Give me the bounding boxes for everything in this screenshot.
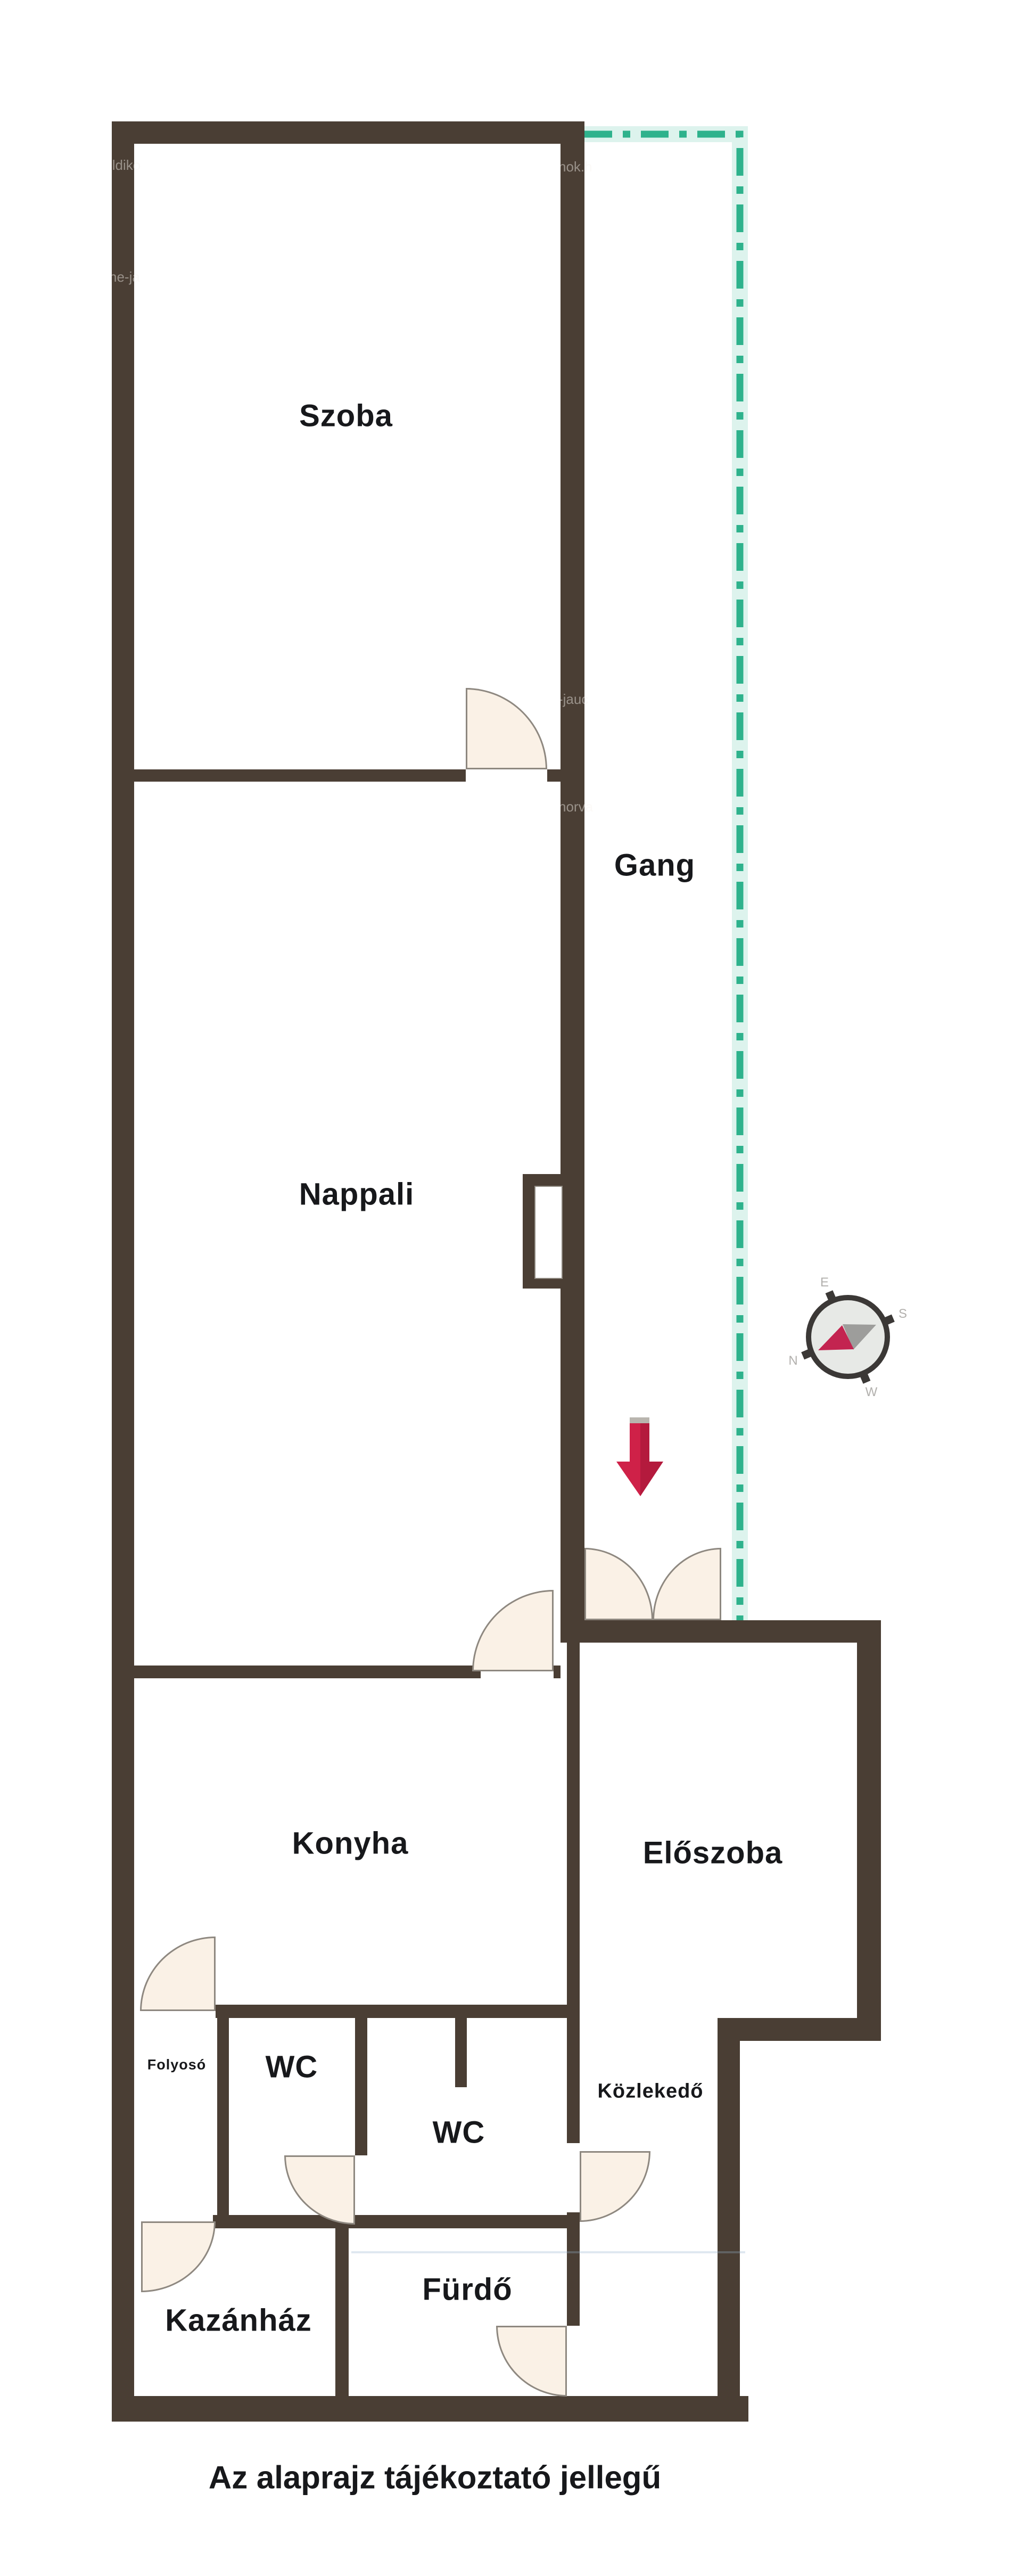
wall-bottom — [112, 2396, 748, 2422]
room-label-folyoso: Folyosó — [147, 2057, 207, 2073]
wall-niche-opening — [534, 1186, 563, 1279]
overlay-graphics: N E S W — [0, 0, 1022, 2576]
door-arc-entry-left — [584, 1548, 653, 1620]
room-label-furdo: Fürdő — [422, 2272, 512, 2308]
door-arc-wc1 — [284, 2155, 355, 2225]
room-label-nappali: Nappali — [299, 1177, 415, 1212]
compass-icon: N E S W — [788, 1275, 907, 1399]
compass-needle-south — [843, 1324, 876, 1350]
room-label-kazanhaz: Kazánház — [165, 2303, 312, 2339]
door-arc-kozlekedo — [580, 2151, 650, 2222]
watermark-fragment: horva — [558, 799, 593, 815]
door-arc-entry-right — [653, 1548, 721, 1620]
wall-wc2-stub — [455, 2018, 467, 2087]
wall-step — [718, 2018, 881, 2041]
wall-szoba-bottom-right — [547, 769, 561, 782]
wall-mid-vertical-upper — [567, 1643, 580, 2143]
room-label-wc1: WC — [266, 2049, 318, 2085]
compass-letter-s: S — [899, 1307, 907, 1321]
caption: Az alaprajz tájékoztató jellegű — [209, 2459, 661, 2496]
entry-arrow-icon — [616, 1417, 663, 1496]
wall-mid-vertical-middle — [567, 2212, 580, 2326]
watermark-fragment: ne-ja — [109, 269, 140, 285]
wall-kazanhaz-furdo — [335, 2228, 349, 2396]
room-label-kozlekedo: Közlekedő — [597, 2080, 703, 2103]
wall-kozlekedo-right — [718, 2018, 740, 2422]
door-arc-nappali-konyha — [472, 1590, 554, 1671]
wall-eloszoba-top — [584, 1620, 881, 1643]
floorplan: N E S W Szoba Gang Nappali Konyha Előszo… — [0, 0, 1022, 2576]
wall-left — [112, 121, 134, 2422]
wall-konyha-bottom — [216, 2005, 580, 2018]
door-arc-szoba — [466, 688, 547, 769]
wall-right-main — [561, 121, 584, 1643]
room-label-szoba: Szoba — [299, 398, 393, 434]
watermark-fragment: nok.h — [558, 159, 592, 175]
room-label-konyha: Konyha — [292, 1826, 409, 1861]
door-arc-kazanhaz — [141, 2221, 216, 2292]
compass-letter-w: W — [866, 1385, 878, 1399]
compass-needle-north — [818, 1325, 854, 1350]
watermark-fragment: -jauc — [558, 691, 588, 708]
wall-wc1-wc2 — [355, 2018, 367, 2155]
watermark-fragment: ildiko — [109, 157, 141, 174]
room-label-gang: Gang — [614, 848, 695, 883]
scan-artifact-line — [351, 2251, 745, 2253]
wall-folyoso-wc — [217, 2018, 229, 2221]
door-arc-konyha-folyoso — [140, 1937, 216, 2011]
wall-top — [112, 121, 584, 144]
wall-mid-vertical-lower — [567, 2398, 580, 2422]
wall-szoba-bottom-left — [134, 769, 466, 782]
compass-letter-n: N — [788, 1353, 797, 1368]
wall-lower-rooms-top — [213, 2215, 580, 2228]
room-label-wc2: WC — [433, 2115, 485, 2151]
wall-konyha-top — [134, 1666, 481, 1678]
wall-konyha-top-stub — [554, 1666, 561, 1678]
wall-eloszoba-right — [857, 1620, 881, 2041]
room-label-eloszoba: Előszoba — [643, 1835, 783, 1871]
compass-letter-e: E — [820, 1275, 829, 1290]
door-arc-furdo — [496, 2326, 567, 2397]
